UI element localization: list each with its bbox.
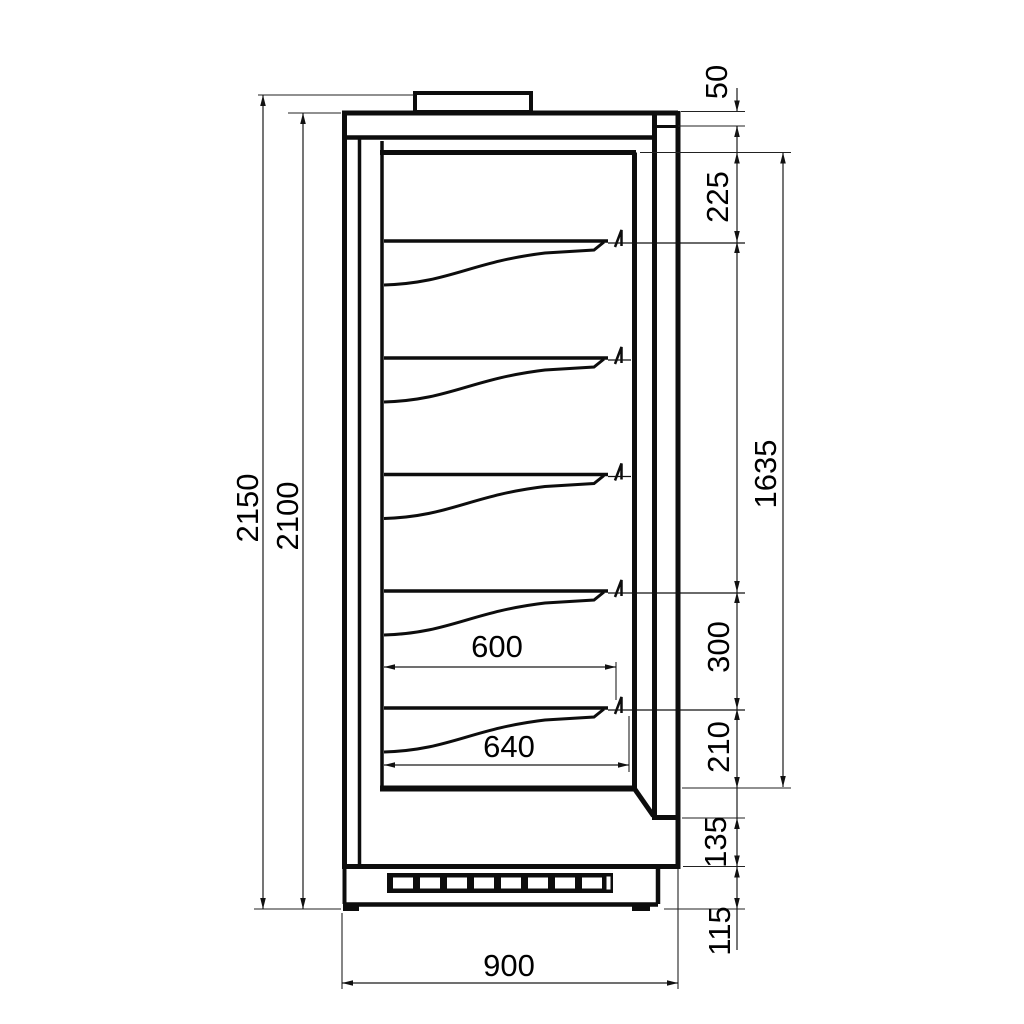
dim-label-shelf-depth: 600 [471,629,523,664]
cabinet-body [342,93,681,911]
shelf-2 [384,347,631,402]
shelf-front-bracket [615,347,622,364]
front-inner-wall-diagonal [634,788,654,816]
cabinet-section-drawing: 2150 2100 50 225 1635 300 210 135 115 60… [0,0,1024,1024]
ventilation-grille [387,873,613,893]
dim-label-top-to-first-shelf: 225 [700,171,735,223]
dim-label-top-edge: 50 [699,65,734,99]
drawing-canvas: 2150 2100 50 225 1635 300 210 135 115 60… [0,0,1024,1024]
shelves [384,230,745,752]
shelf-front-bracket [615,580,622,597]
foot-right [632,904,650,911]
dim-label-interior-depth: 640 [483,729,535,764]
top-box [415,93,531,112]
dim-label-last-shelf-to-bottom: 210 [701,721,736,773]
dim-label-bottom-front-panel: 135 [698,816,733,868]
dimension-labels: 2150 2100 50 225 1635 300 210 135 115 60… [230,65,783,983]
dim-label-overall-height: 2150 [230,474,265,543]
shelf-4 [384,580,745,635]
shelf-1 [384,230,745,285]
dim-label-shelf-pitch: 300 [701,621,736,673]
shelf-front-bracket [615,464,622,481]
dim-label-plinth-height: 115 [702,906,737,955]
foot-left [343,904,359,911]
shelf-5 [384,697,745,752]
shelf-3 [384,464,631,519]
dim-label-overall-depth: 900 [483,948,535,983]
shelf-front-bracket [615,230,622,247]
dim-label-shelf-zone-height: 1635 [748,440,783,509]
dim-label-cabinet-height: 2100 [270,482,305,551]
